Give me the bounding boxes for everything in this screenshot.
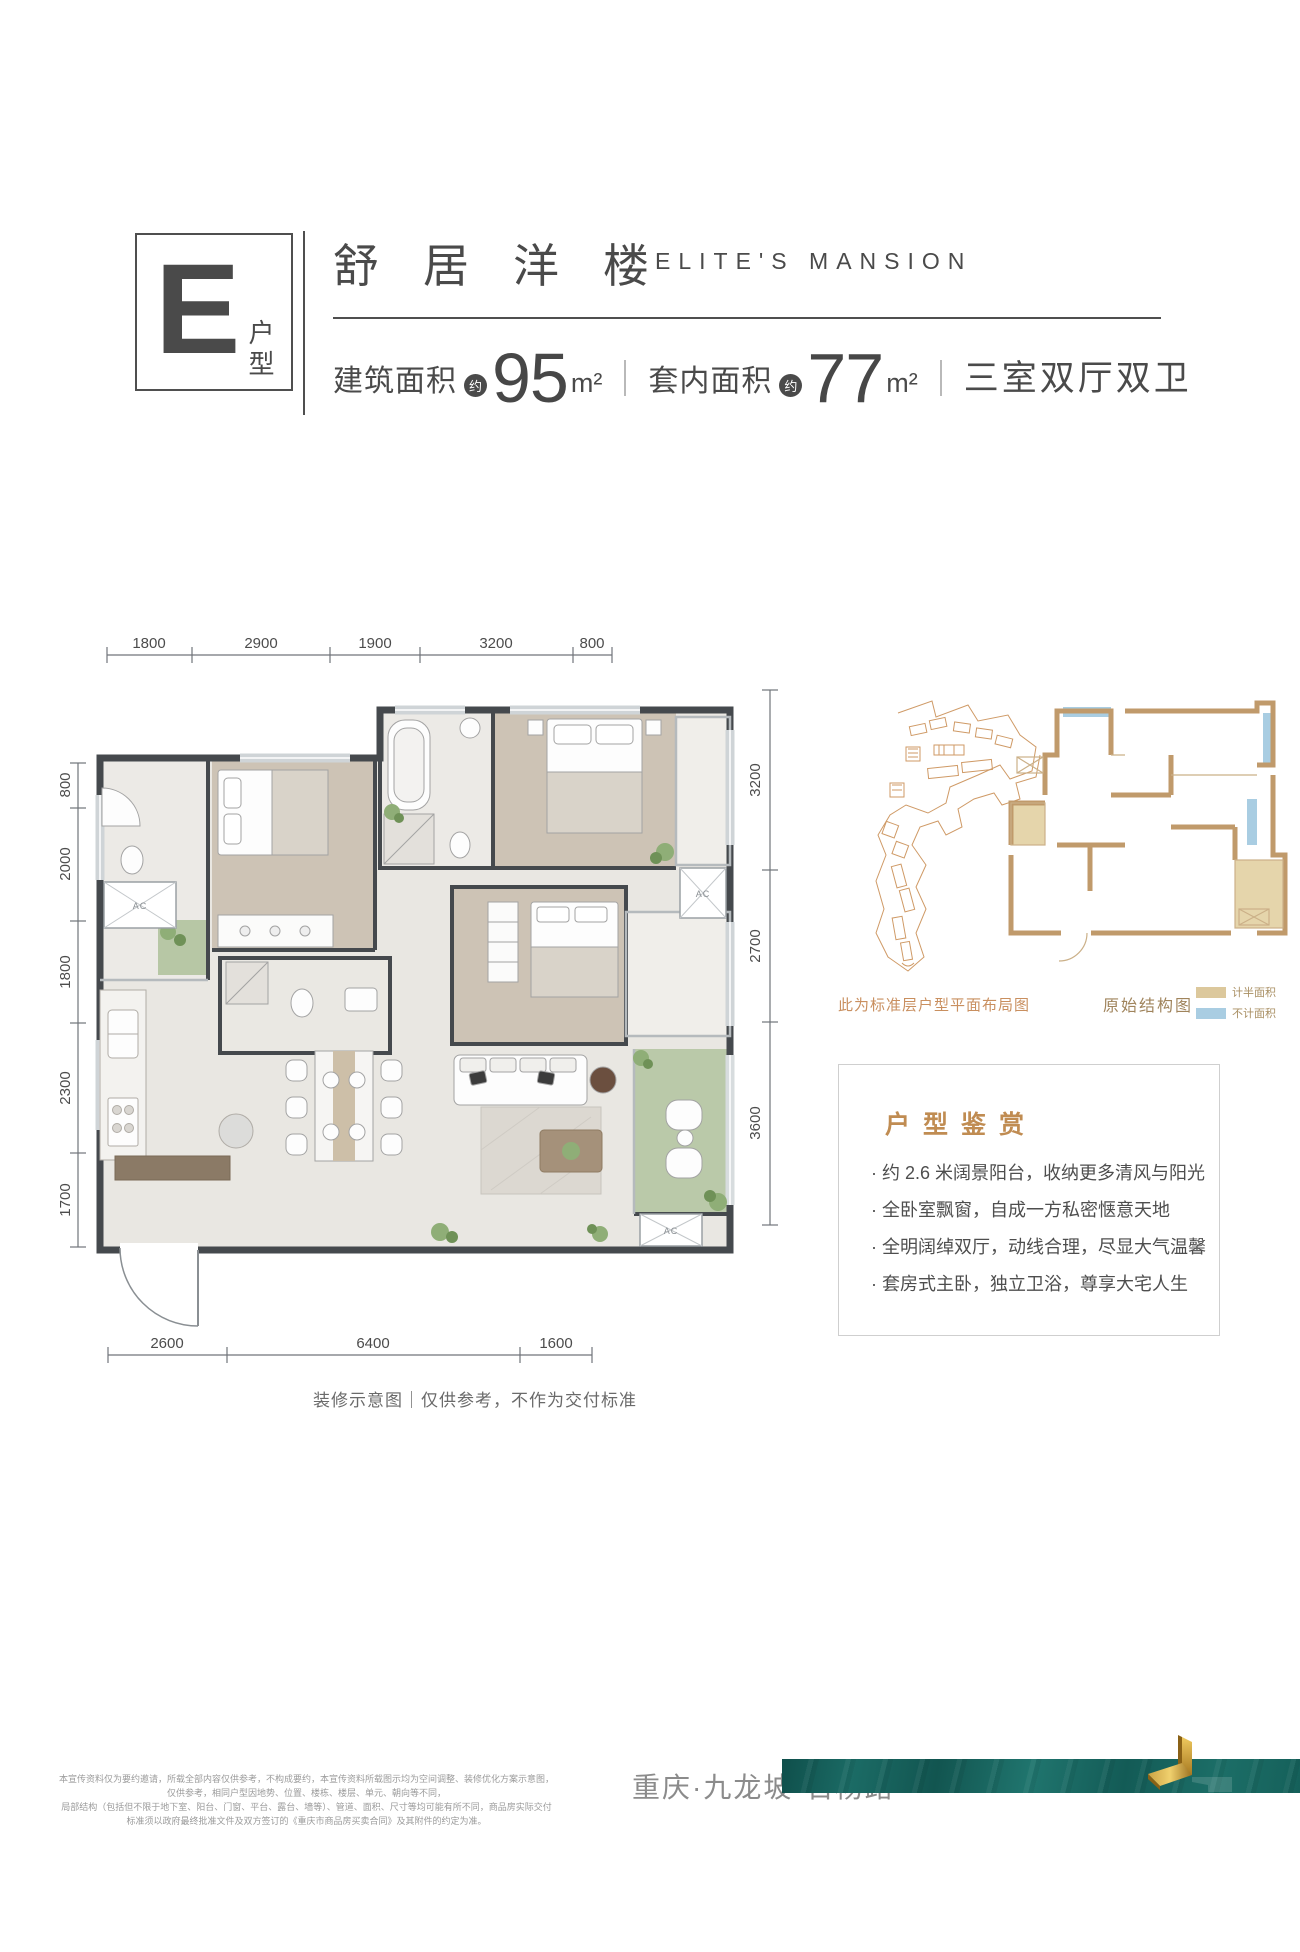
svg-text:2600: 2600	[150, 1335, 183, 1352]
gold-logo-icon	[1140, 1735, 1236, 1795]
bullet-item: · 全明阔绰双厅，动线合理，尽显大气温馨	[871, 1229, 1201, 1266]
header-rule	[333, 317, 1161, 319]
ac-unit-icon: AC	[680, 868, 726, 918]
header-vertical-divider	[303, 231, 305, 415]
svg-text:1800: 1800	[57, 955, 74, 988]
svg-text:1800: 1800	[132, 635, 165, 652]
master-bay-floor	[676, 717, 730, 865]
disclaimer-line: 局部结构（包括但不限于地下室、阳台、门窗、平台、露台、墙等）、管道、面积、尺寸等…	[58, 1800, 555, 1828]
svg-text:800: 800	[579, 635, 604, 652]
svg-text:6400: 6400	[356, 1335, 389, 1352]
half-area-swatch	[1196, 987, 1226, 998]
svg-text:1700: 1700	[57, 1183, 74, 1216]
svg-text:AC: AC	[664, 1226, 679, 1236]
appreciation-bullets: · 约 2.6 米阔景阳台，收纳更多清风与阳光 · 全卧室飘窗，自成一方私密惬意…	[871, 1155, 1201, 1303]
bullet-item: · 约 2.6 米阔景阳台，收纳更多清风与阳光	[871, 1155, 1201, 1192]
legend-item: 计半面积	[1196, 984, 1276, 1000]
svg-text:2700: 2700	[747, 929, 764, 962]
svg-text:1900: 1900	[358, 635, 391, 652]
legend-item: 不计面积	[1196, 1005, 1276, 1021]
ac-unit-icon: AC	[640, 1214, 702, 1246]
disclaimer-text: 本宣传资料仅为要约邀请，所载全部内容仅供参考，不构成要约，本宣传资料所载图示均为…	[58, 1772, 555, 1828]
svg-text:AC: AC	[696, 889, 711, 899]
door-swing-icon	[120, 1243, 198, 1326]
disclaimer-line: 本宣传资料仅为要约邀请，所载全部内容仅供参考，不构成要约，本宣传资料所载图示均为…	[58, 1772, 555, 1800]
area-divider	[624, 360, 626, 396]
structure-thin-lines	[1011, 755, 1283, 961]
dining-set	[286, 1051, 402, 1161]
appreciation-title: 户型鉴赏	[885, 1105, 1037, 1141]
unit-label: 户型	[242, 319, 279, 381]
area1-unit: m²	[571, 368, 602, 399]
svg-text:2000: 2000	[57, 847, 74, 880]
area2-label: 套内面积	[648, 356, 772, 400]
unit-type-box: E 户型	[135, 233, 293, 391]
area2-value: 77	[807, 346, 883, 410]
svg-text:800: 800	[57, 772, 74, 797]
area1-value: 95	[492, 346, 568, 410]
area1-label: 建筑面积	[333, 356, 457, 400]
floorplan-drawing: AC AC AC	[40, 560, 780, 1380]
floorplan-poster-page: E 户型 舒居洋楼 ELITE'S MANSION 建筑面积 约 95 m² 套…	[0, 0, 1300, 1952]
svg-text:2900: 2900	[244, 635, 277, 652]
area-info-row: 建筑面积 约 95 m² 套内面积 约 77 m² 三室双厅双卫	[333, 330, 1192, 410]
master-bed	[528, 719, 661, 833]
unit-letter: E	[155, 231, 240, 389]
svg-text:1600: 1600	[539, 1335, 572, 1352]
legend-label: 计半面积	[1232, 984, 1276, 1000]
structure-plan	[995, 695, 1295, 980]
bedroom3-bay-floor	[626, 912, 730, 1036]
structure-plan-caption: 原始结构图	[1103, 992, 1193, 1016]
structure-legend: 计半面积 不计面积	[1196, 984, 1276, 1026]
half-area-zone	[1011, 803, 1045, 845]
svg-text:3200: 3200	[479, 635, 512, 652]
site-plan-caption: 此为标准层户型平面布局图	[838, 994, 1030, 1015]
svg-text:3200: 3200	[747, 763, 764, 796]
svg-text:2300: 2300	[57, 1071, 74, 1104]
area2-unit: m²	[886, 368, 917, 399]
half-area-zone	[1235, 860, 1283, 928]
no-area-swatch	[1196, 1008, 1226, 1019]
legend-label: 不计面积	[1232, 1005, 1276, 1021]
page-title: 舒居洋楼	[333, 230, 693, 296]
rooms-label: 三室双厅双卫	[964, 350, 1192, 401]
svg-text:3600: 3600	[747, 1106, 764, 1139]
no-area-window	[1247, 799, 1257, 845]
approx-circle-icon: 约	[779, 374, 802, 397]
bullet-item: · 套房式主卧，独立卫浴，尊享大宅人生	[871, 1266, 1201, 1303]
approx-circle-icon: 约	[464, 374, 487, 397]
bullet-item: · 全卧室飘窗，自成一方私密惬意天地	[871, 1192, 1201, 1229]
area-divider	[940, 360, 942, 396]
plan-caption: 装修示意图｜仅供参考，不作为交付标准	[313, 1386, 637, 1411]
ac-unit-icon: AC	[104, 882, 176, 928]
page-title-en: ELITE'S MANSION	[655, 248, 972, 275]
appreciation-panel: 户型鉴赏 · 约 2.6 米阔景阳台，收纳更多清风与阳光 · 全卧室飘窗，自成一…	[838, 1064, 1220, 1336]
svg-text:AC: AC	[133, 901, 148, 911]
